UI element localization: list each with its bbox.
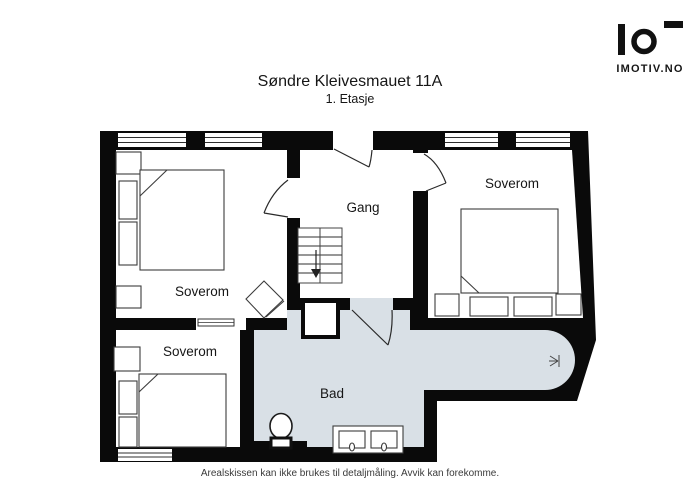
chimney-shaft xyxy=(303,301,338,337)
logo-dash-icon xyxy=(664,21,683,28)
logo-ring-icon xyxy=(634,32,654,52)
pillow xyxy=(514,297,552,316)
room-label-soverom-right: Soverom xyxy=(485,176,539,191)
staircase xyxy=(298,228,342,283)
header: Søndre Kleivesmauet 11A 1. Etasje xyxy=(258,73,443,106)
soverom-left-door-opening xyxy=(287,178,300,218)
bad-door-opening xyxy=(350,298,393,310)
entrance-door-opening xyxy=(333,131,373,150)
pillow xyxy=(119,381,137,414)
page-subtitle: 1. Etasje xyxy=(326,92,375,106)
toilet xyxy=(270,414,292,449)
bed xyxy=(140,170,224,270)
pillow xyxy=(119,181,137,219)
faucet xyxy=(350,443,355,451)
logo-text: IMOTIV.NO xyxy=(616,63,683,75)
nightstand xyxy=(435,294,459,316)
floorplan-canvas: Søndre Kleivesmauet 11A 1. Etasje IMOTIV… xyxy=(0,0,700,500)
room-label-bad: Bad xyxy=(320,386,344,401)
room-label-soverom-left: Soverom xyxy=(175,284,229,299)
faucet xyxy=(382,443,387,451)
nightstand xyxy=(556,294,581,315)
pillow xyxy=(119,417,137,447)
window-top-1 xyxy=(118,133,186,147)
room-label-soverom-bottom: Soverom xyxy=(163,344,217,359)
window-bottom-1 xyxy=(118,449,172,461)
sliding-door xyxy=(198,319,234,326)
nightstand xyxy=(114,347,140,371)
nightstand xyxy=(116,286,141,308)
pillow xyxy=(470,297,508,316)
disclaimer-text: Arealskissen kan ikke brukes til detaljm… xyxy=(201,467,499,479)
bed xyxy=(139,374,226,447)
imotiv-logo: IMOTIV.NO xyxy=(616,21,683,75)
room-label-gang: Gang xyxy=(346,200,379,215)
window-top-3 xyxy=(445,133,498,147)
page-title: Søndre Kleivesmauet 11A xyxy=(258,73,443,90)
window-top-2 xyxy=(205,133,262,147)
bed xyxy=(461,209,558,293)
soverom-right-door-opening xyxy=(413,153,428,191)
nightstand xyxy=(116,152,141,174)
window-top-4 xyxy=(516,133,570,147)
logo-bar-icon xyxy=(618,24,625,55)
vanity-double-sink xyxy=(333,426,403,453)
floorplan-page: Søndre Kleivesmauet 11A 1. Etasje IMOTIV… xyxy=(0,0,700,500)
pillow xyxy=(119,222,137,265)
